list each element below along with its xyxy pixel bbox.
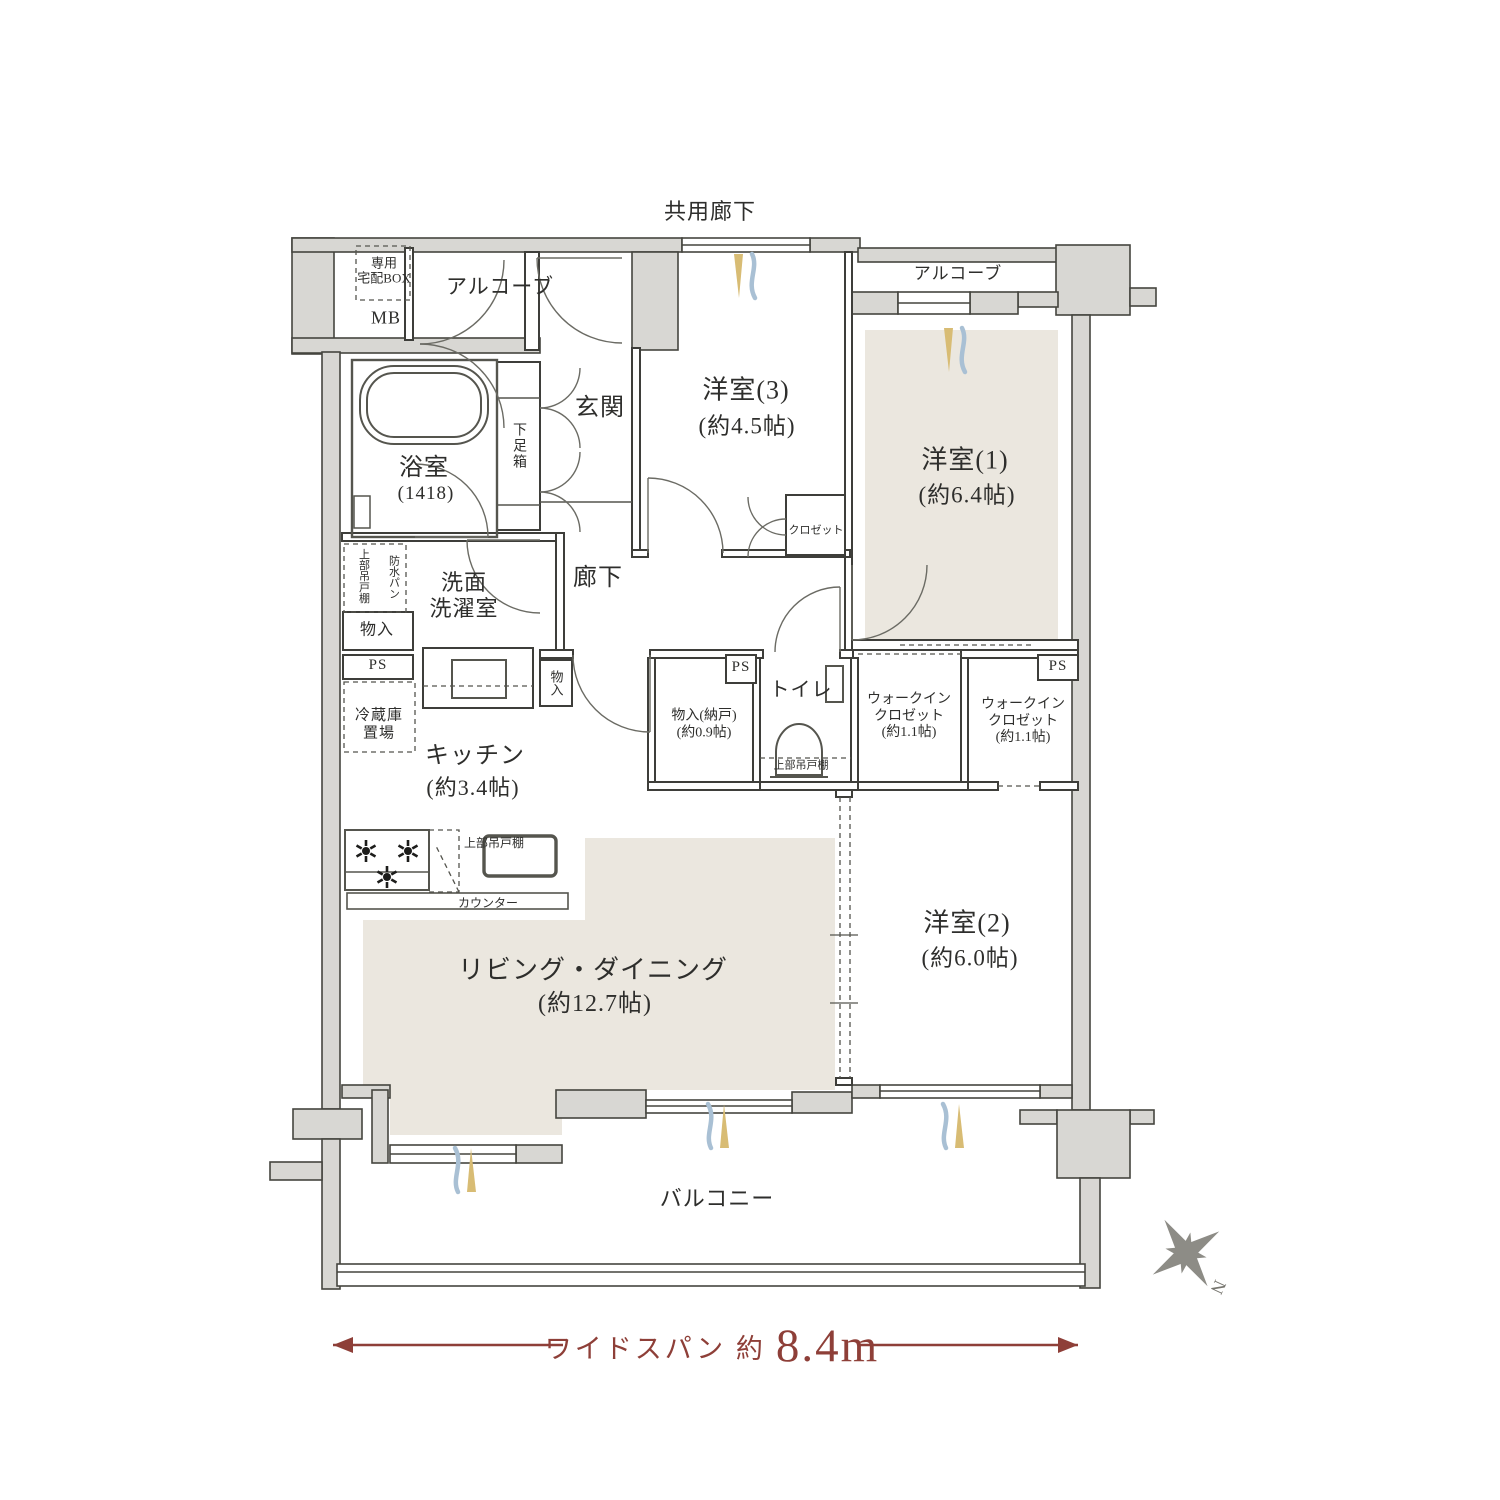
room1-size-label: (約6.4帖) [918, 481, 1015, 508]
room2-name-label: 洋室(2) [923, 909, 1010, 940]
balcony-label: バルコニー [660, 1186, 775, 1212]
meter-box-label: MB [371, 307, 401, 328]
wic-left-label: ウォークイン クロゼット (約1.1帖) [867, 692, 951, 742]
ps-center-label: PS [732, 659, 751, 677]
fridge-space-label: 冷蔵庫 置場 [355, 707, 403, 742]
upper-cabinet-toilet-label: 上部吊戸棚 [774, 760, 829, 773]
common-corridor-label: 共用廊下 [664, 199, 756, 225]
entrance-label: 玄関 [575, 394, 625, 422]
alcove-left-label: アルコーブ [446, 275, 554, 300]
bathroom-fixtures [352, 360, 497, 537]
wide-span-dimension: ワイドスパン 約8.4m [545, 1319, 879, 1373]
wic-right-label: ウォークイン クロゼット (約1.1帖) [981, 697, 1065, 747]
storage-nando-label: 物入(納戸) (約0.9帖) [671, 708, 736, 741]
wide-span-prefix: ワイドスパン 約 [545, 1327, 766, 1366]
bathroom-size-label: (1418) [398, 483, 455, 505]
living-size-label: (約12.7帖) [538, 990, 652, 1018]
ps-right-label: PS [1049, 658, 1068, 676]
floorplan-page: 共用廊下 アルコーブ 専用 宅配BOX MB アルコーブ 洋室(3) (約4.5… [0, 0, 1500, 1500]
room3-name-label: 洋室(3) [702, 376, 789, 407]
storage-left-label: 物入 [360, 622, 394, 641]
washroom-label: 洗面 洗濯室 [429, 570, 498, 622]
delivery-box-label: 専用 宅配BOX [357, 256, 410, 287]
upper-cabinet-laundry-label: 上部吊戸棚 [358, 549, 369, 604]
ps-left-label: PS [369, 657, 388, 675]
shoe-cabinet-label: 下足箱 [511, 422, 525, 470]
counter-label: カウンター [458, 896, 518, 910]
room2-size-label: (約6.0帖) [921, 944, 1018, 971]
room3-size-label: (約4.5帖) [698, 412, 795, 439]
floorplan-drawing [0, 0, 1500, 1500]
kitchen-size-label: (約3.4帖) [426, 775, 519, 801]
toilet-label: トイレ [770, 679, 833, 703]
alcove-right-label: アルコーブ [914, 264, 1002, 284]
storage-center-label: 物入 [550, 670, 563, 696]
compass-icon [1153, 1220, 1219, 1286]
kitchen-name-label: キッチン [425, 742, 525, 770]
balcony-railing [337, 1264, 1085, 1286]
bathroom-name-label: 浴室 [399, 454, 449, 482]
hallway-label: 廊下 [573, 564, 623, 592]
waterproof-pan-label: 防水パン [388, 555, 399, 599]
room1-name-label: 洋室(1) [921, 446, 1008, 477]
wide-span-value: 8.4m [776, 1319, 879, 1373]
living-name-label: リビング・ダイニング [458, 956, 728, 987]
closet-room3-label: クロゼット [789, 525, 844, 538]
upper-cabinet-kitchen-label: 上部吊戸棚 [464, 836, 524, 850]
